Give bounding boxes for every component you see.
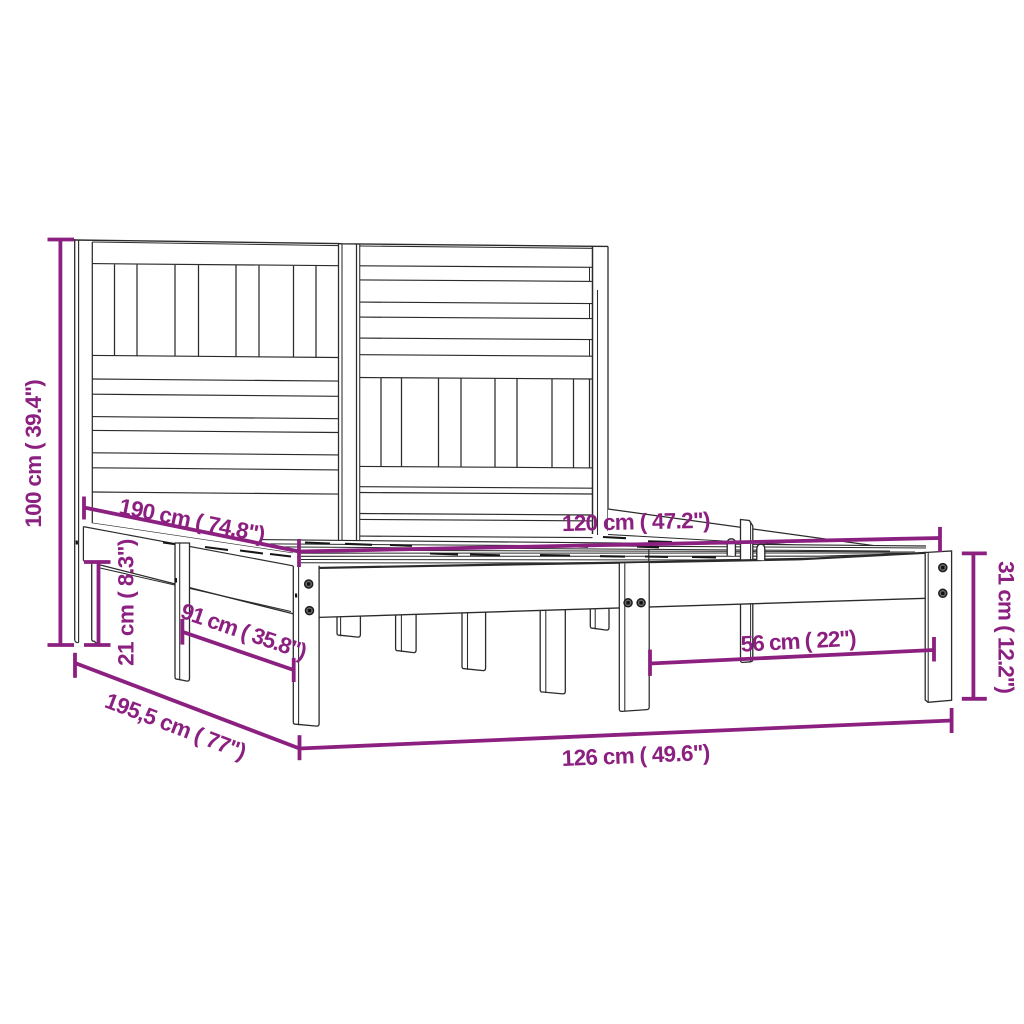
svg-text:120 cm ( 47.2"): 120 cm ( 47.2") [562,508,710,536]
svg-text:31 cm ( 12.2"): 31 cm ( 12.2") [994,561,1019,693]
svg-text:21 cm ( 8.3"): 21 cm ( 8.3") [114,539,139,666]
svg-text:100 cm ( 39.4"): 100 cm ( 39.4") [21,380,46,528]
